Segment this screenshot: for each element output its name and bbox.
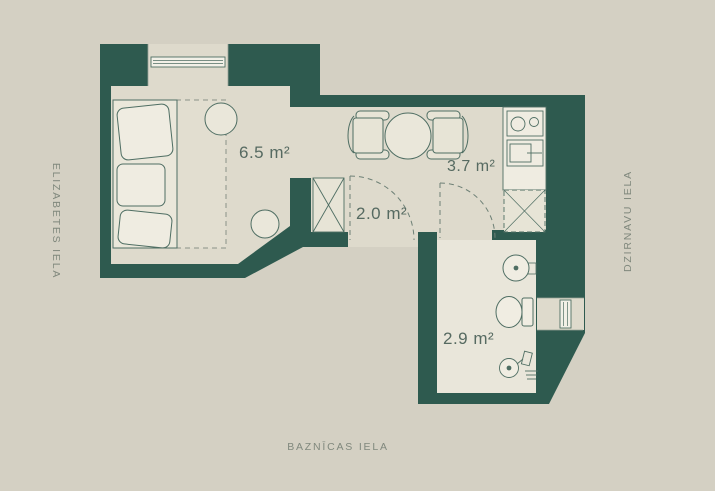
kitchen-block: [503, 107, 546, 232]
wardrobe-crossed: [313, 178, 344, 232]
floor-plan: 6.5 m² 3.7 m² 2.0 m² 2.9 m² ELIZABETES I…: [0, 0, 715, 491]
living-room-area-label: 6.5 m²: [239, 143, 290, 163]
dining-table-round: [385, 113, 431, 159]
floor-plan-page: { "page": { "background": "#d4d0c3" }, "…: [0, 0, 715, 491]
dining-chair-left: [348, 111, 389, 159]
hallway-area-label: 2.0 m²: [356, 204, 407, 224]
sofa-cushions: [116, 103, 173, 248]
toilet: [496, 297, 533, 328]
window-top: [148, 44, 228, 86]
kitchen-counter: [503, 107, 546, 190]
side-table-round: [205, 103, 237, 135]
side-table-round-2: [251, 210, 279, 238]
street-label-left: ELIZABETES IELA: [50, 163, 62, 279]
floor-plan-drawing: [0, 0, 715, 491]
street-label-bottom: BAZNĪCAS IELA: [287, 441, 389, 453]
dining-chair-right: [427, 111, 468, 159]
window-right: [537, 298, 584, 330]
kitchen-area-label: 3.7 m²: [447, 158, 495, 176]
kitchen-cabinet-dashed: [504, 190, 545, 232]
dining-set: [348, 111, 468, 159]
street-label-right: DZIRNAVU IELA: [622, 170, 634, 272]
bathroom-area-label: 2.9 m²: [443, 329, 494, 349]
